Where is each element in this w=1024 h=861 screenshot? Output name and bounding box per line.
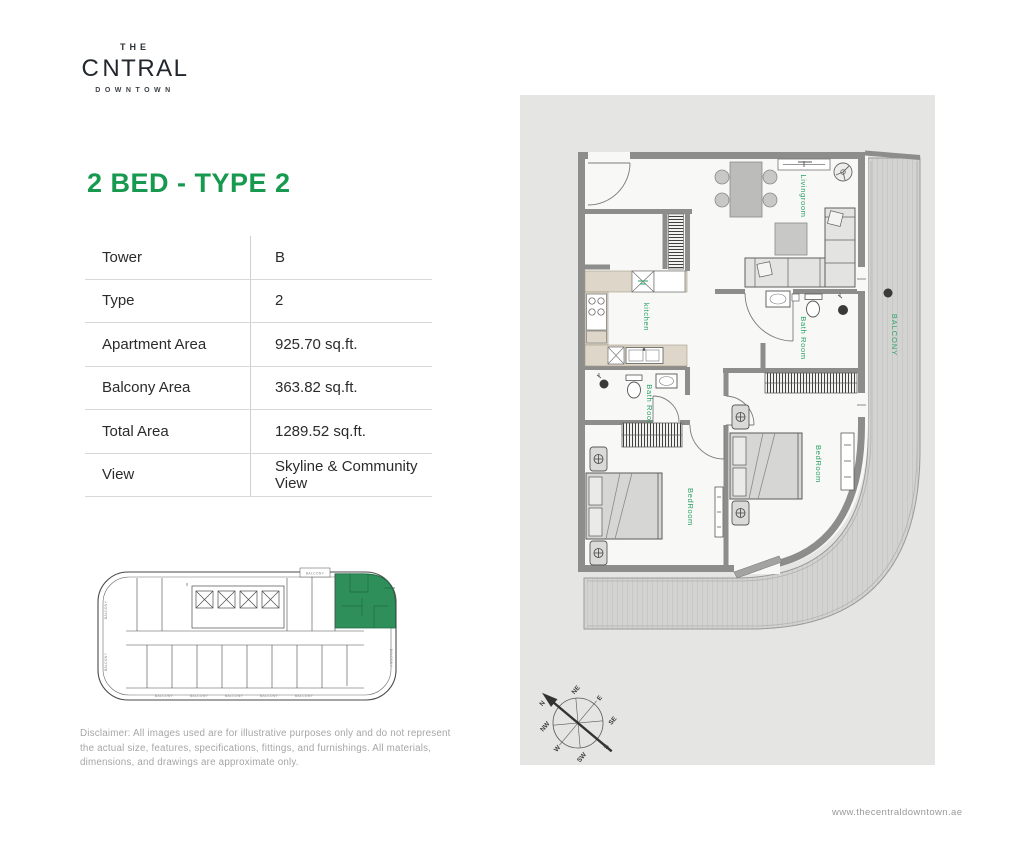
disclaimer-text: Disclaimer: All images used are for illu… (80, 727, 452, 771)
chair-icon (715, 170, 729, 184)
pillow-icon (733, 468, 746, 496)
room-label-bathroom: Bath Room (799, 316, 808, 359)
page-title: 2 BED - TYPE 2 (87, 168, 291, 199)
keyplan-balcony-label: BALCONY (306, 572, 325, 576)
row-value: 925.70 sq.ft. (250, 323, 432, 366)
chair-icon (763, 170, 777, 184)
elevator-core (192, 586, 284, 628)
room-label-balcony: BALCONY (890, 314, 899, 356)
floor-plan-svg: kitchen Bath Room (520, 95, 935, 765)
shower-drain-icon (600, 380, 609, 389)
compass-sw: SW (576, 751, 589, 764)
table-row: Tower B (85, 236, 432, 280)
toilet-icon (807, 301, 820, 317)
key-plan: BALCONY BALCONY BALCONY BALCONY BALCONY … (92, 558, 407, 718)
compass-se: SE (607, 715, 618, 727)
row-label: Balcony Area (85, 367, 250, 410)
pillow-icon (827, 211, 843, 227)
row-value: B (250, 236, 432, 279)
compass-icon: N NE E SE S SW W NW (524, 673, 634, 778)
toilet-icon (628, 382, 641, 398)
brand-logo-downtown: DOWNTOWN (83, 87, 187, 94)
table-row: Total Area 1289.52 sq.ft. (85, 410, 432, 454)
keyplan-balcony-label: BALCONY (295, 694, 314, 698)
room-label-bedroom: BedRoom (814, 445, 823, 483)
room-label-bedroom: BedRoom (686, 488, 695, 526)
table-row: Balcony Area 363.82 sq.ft. (85, 367, 432, 411)
row-label: Total Area (85, 410, 250, 453)
chair-icon (715, 193, 729, 207)
chair-icon (763, 193, 777, 207)
row-label: View (85, 454, 250, 497)
compass-nw: NW (539, 720, 552, 733)
brand-logo-c: C (81, 55, 100, 83)
pillow-icon (757, 262, 772, 277)
keyplan-balcony-label: BALCONY (225, 694, 244, 698)
compass-n: N (538, 699, 547, 707)
room-label-kitchen: kitchen (642, 303, 651, 331)
unit-spec-table: Tower B Type 2 Apartment Area 925.70 sq.… (85, 236, 432, 497)
table-row: Type 2 (85, 280, 432, 324)
row-value: 1289.52 sq.ft. (250, 410, 432, 453)
shower-drain-icon (838, 305, 848, 315)
room-label-bathroom: Bath Room (645, 384, 654, 427)
website-url: www.thecentraldowntown.ae (832, 807, 962, 818)
highlighted-unit (335, 574, 395, 628)
dining-table (730, 162, 762, 217)
page-root: { "brand": { "line1": "THE", "name_c": "… (0, 0, 1024, 861)
keyplan-balcony-label: BALCONY (104, 600, 108, 619)
row-value: 363.82 sq.ft. (250, 367, 432, 410)
basin-icon (656, 374, 677, 388)
row-label: Apartment Area (85, 323, 250, 366)
compass-rose: N NE E SE S SW W NW (524, 673, 634, 778)
dresser (841, 433, 854, 490)
row-value: Skyline & Community View (250, 454, 432, 497)
keyplan-balcony-label: BALCONY (190, 694, 209, 698)
brand-logo-rest: NTRAL (102, 55, 188, 83)
brand-logo-central: C NTRAL (83, 55, 187, 83)
balcony-drain-icon (884, 289, 893, 298)
row-value: 2 (250, 280, 432, 323)
pillow-icon (589, 477, 602, 505)
pillow-icon (589, 508, 602, 536)
basin-icon (766, 291, 790, 307)
brand-logo: THE C NTRAL DOWNTOWN (83, 42, 187, 94)
key-plan-svg: BALCONY BALCONY BALCONY BALCONY BALCONY … (92, 558, 407, 713)
keyplan-balcony-label: BALCONY (260, 694, 279, 698)
room-label-livingroom: Livingroom (799, 174, 808, 217)
table-row: View Skyline & Community View (85, 454, 432, 498)
compass-e: E (596, 694, 605, 702)
pillow-icon (733, 437, 746, 465)
brand-logo-the: THE (83, 42, 187, 52)
floor-plan-panel: kitchen Bath Room (520, 95, 935, 765)
table-row: Apartment Area 925.70 sq.ft. (85, 323, 432, 367)
keyplan-balcony-label: BALCONY (104, 652, 108, 671)
compass-w: W (553, 744, 563, 754)
keyplan-balcony-label: BALCONY (155, 694, 174, 698)
keyplan-balcony-label: BALCONY (389, 649, 393, 668)
compass-ne: NE (571, 684, 583, 696)
ac-unit (669, 214, 684, 269)
coffee-table (775, 223, 807, 255)
row-label: Type (85, 280, 250, 323)
row-label: Tower (85, 236, 250, 279)
